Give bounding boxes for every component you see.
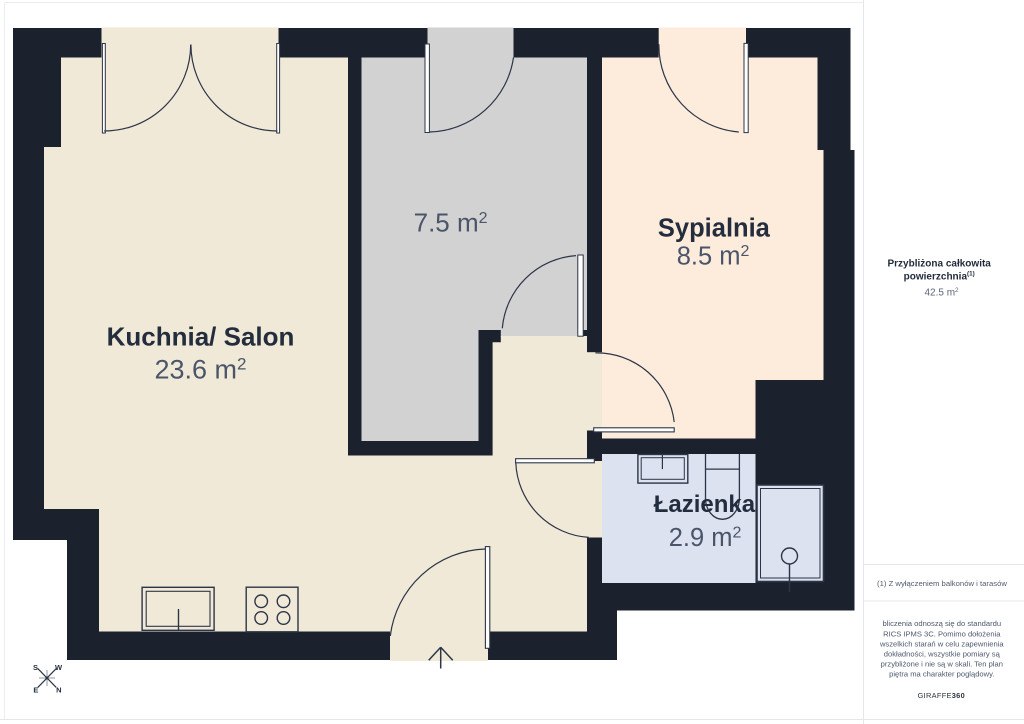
svg-text:S: S [33,663,38,672]
svg-text:42.5 m2: 42.5 m2 [924,287,959,299]
svg-text:GIRAFFE360: GIRAFFE360 [918,691,965,700]
svg-text:bliczenia odnoszą się do stand: bliczenia odnoszą się do standardu [882,619,1001,628]
svg-text:dokładności, wszystkie pomiary: dokładności, wszystkie pomiary są [884,650,1001,659]
svg-text:W: W [55,663,63,672]
svg-text:8.5 m2: 8.5 m2 [677,243,750,271]
svg-text:Przybliżona całkowita: Przybliżona całkowita [888,258,992,269]
svg-text:piętra ma charakter poglądowy.: piętra ma charakter poglądowy. [889,670,994,679]
svg-text:7.5 m2: 7.5 m2 [414,207,488,237]
svg-text:23.6 m2: 23.6 m2 [154,355,246,385]
svg-text:wszelkich starań w celu zapewn: wszelkich starań w celu zapewnienia [879,639,1004,648]
svg-text:Sypialnia: Sypialnia [658,215,771,243]
svg-text:E: E [33,686,38,695]
svg-text:Łazienka: Łazienka [654,491,756,518]
svg-text:2.9 m2: 2.9 m2 [669,524,742,552]
svg-text:N: N [56,686,61,695]
svg-text:RICS IPMS 3C. Pomimo dołożenia: RICS IPMS 3C. Pomimo dołożenia [883,629,1001,638]
svg-text:Kuchnia/ Salon: Kuchnia/ Salon [107,321,295,351]
svg-text:przybliżone i nie są w skali.: przybliżone i nie są w skali. Ten plan [881,660,1003,669]
svg-text:(1) Z wyłączeniem balkonów i t: (1) Z wyłączeniem balkonów i tarasów [877,579,1007,588]
svg-text:powierzchnia(1): powierzchnia(1) [904,271,975,283]
